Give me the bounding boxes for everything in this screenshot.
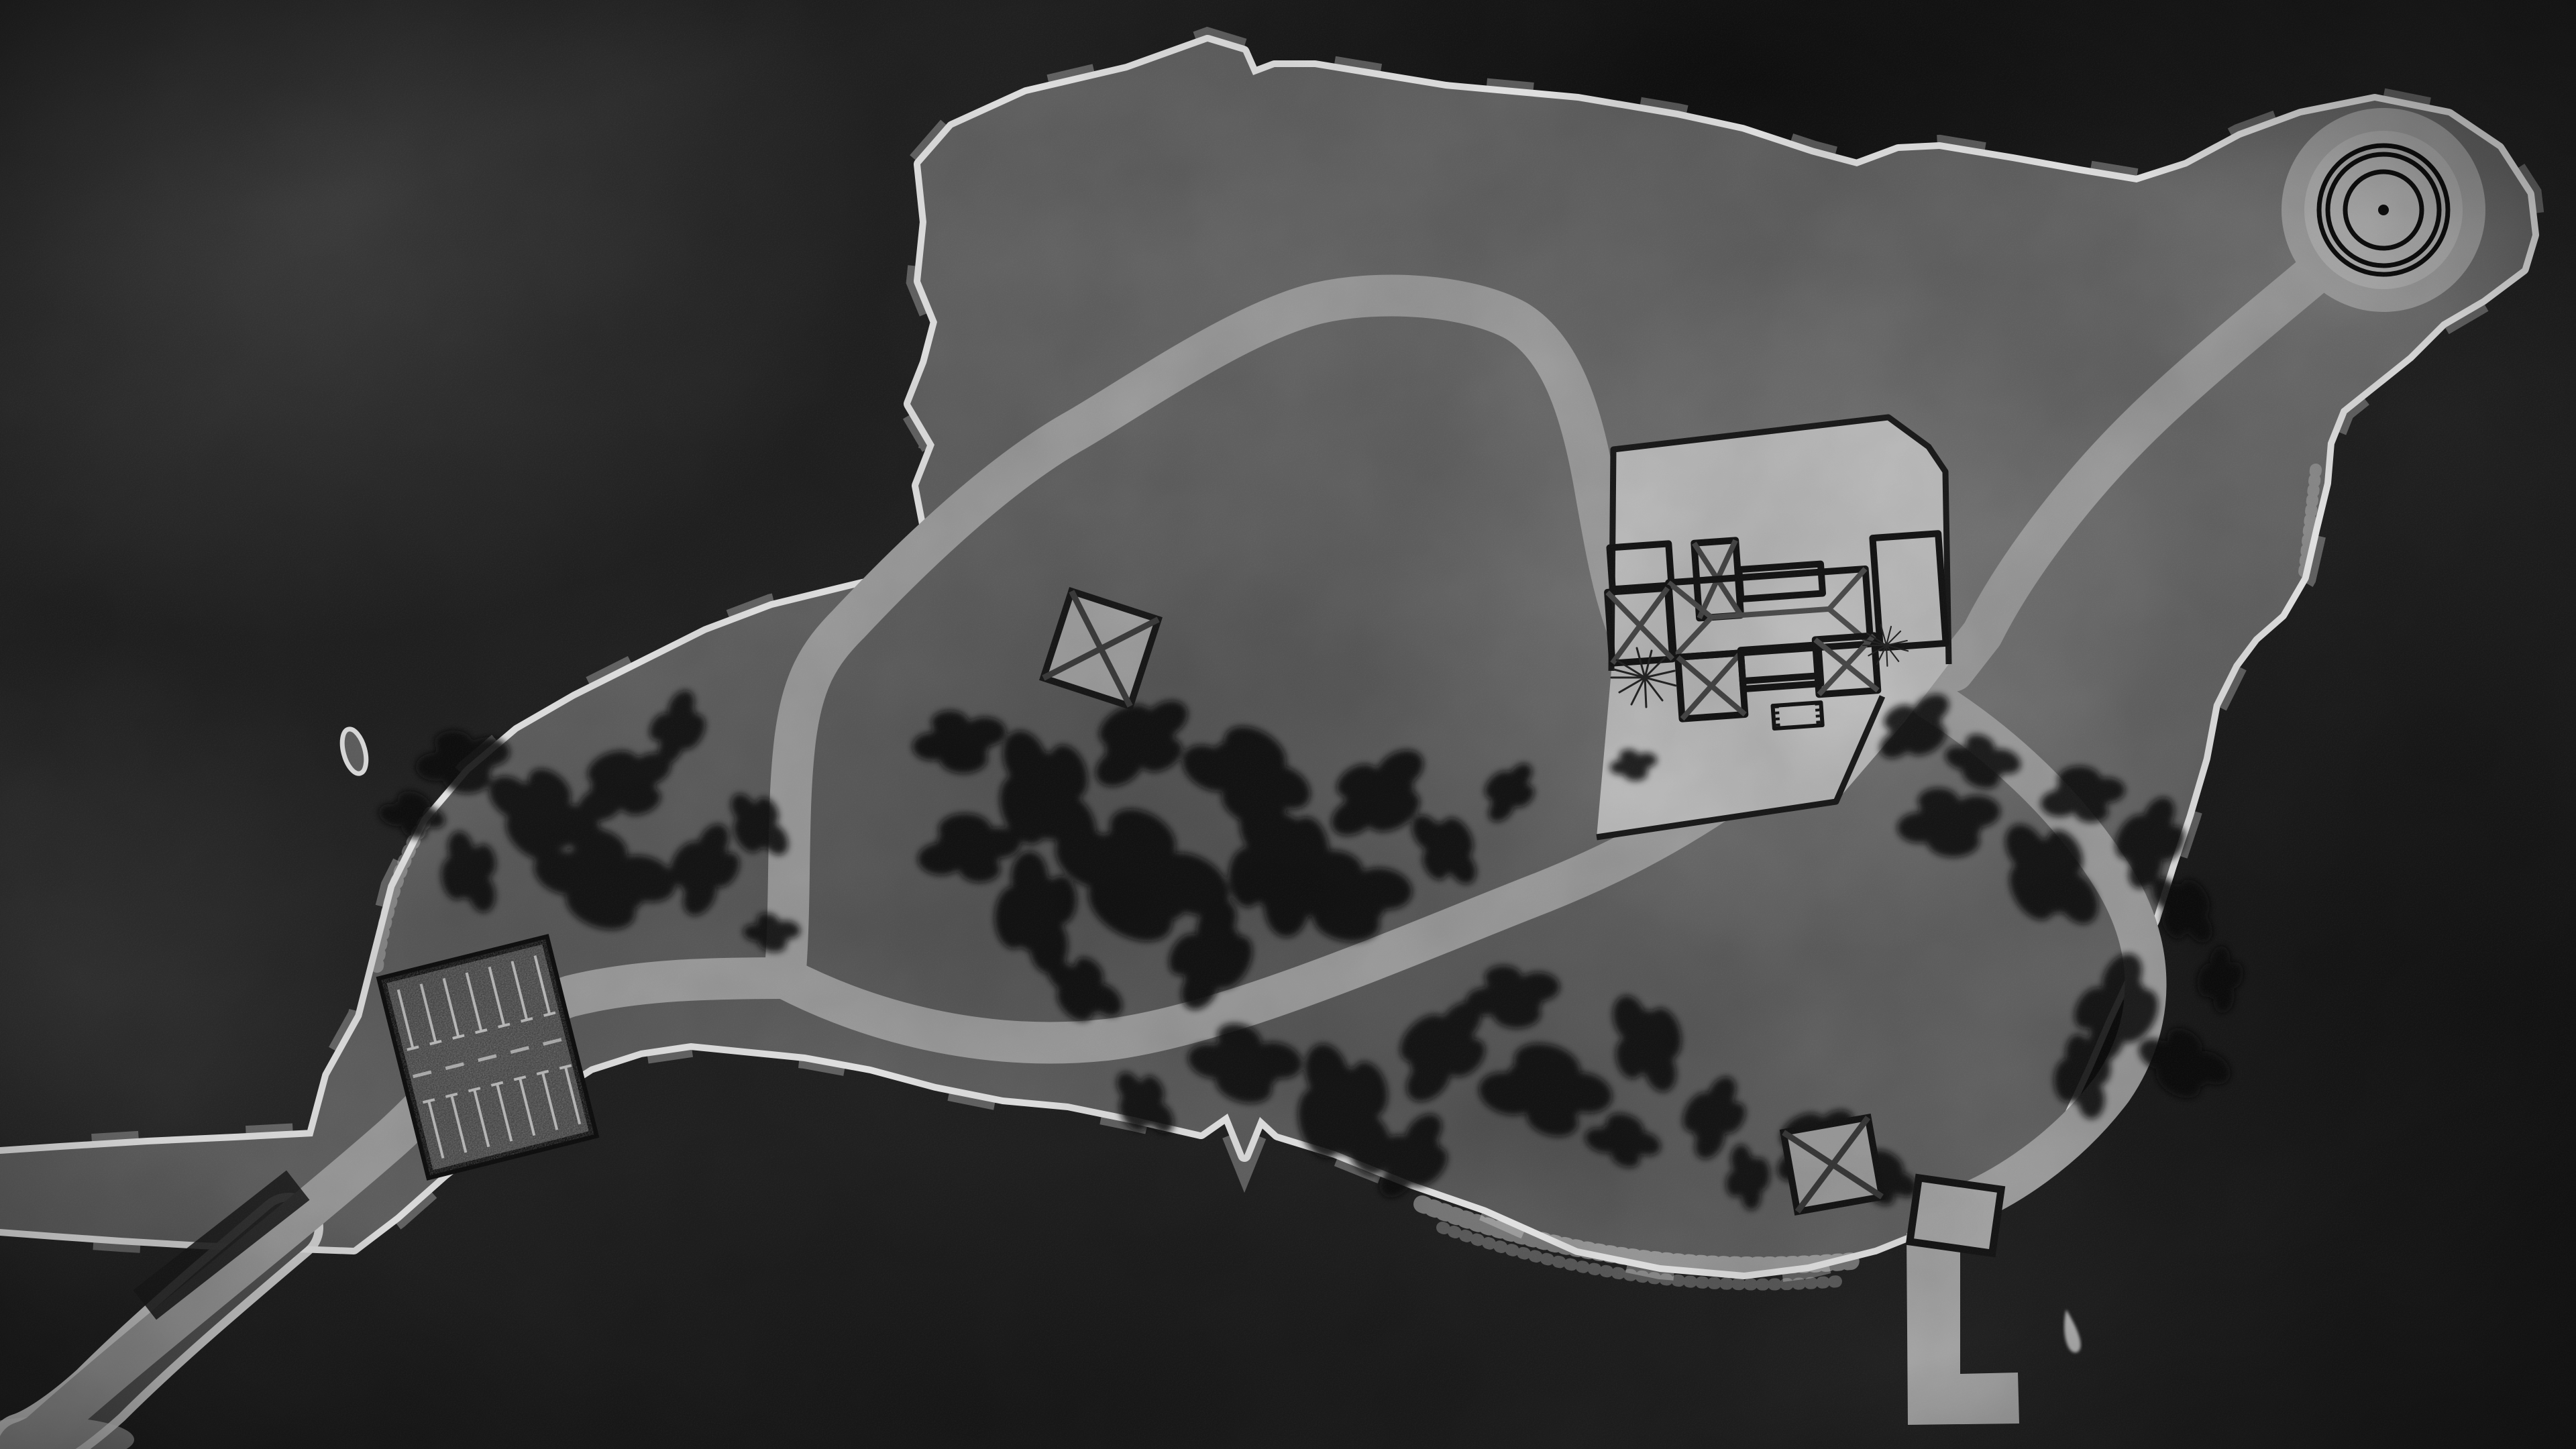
vignette — [0, 0, 2576, 1449]
island-map-canvas: Hand-drawn monochrome island map, top-do… — [0, 0, 2576, 1449]
